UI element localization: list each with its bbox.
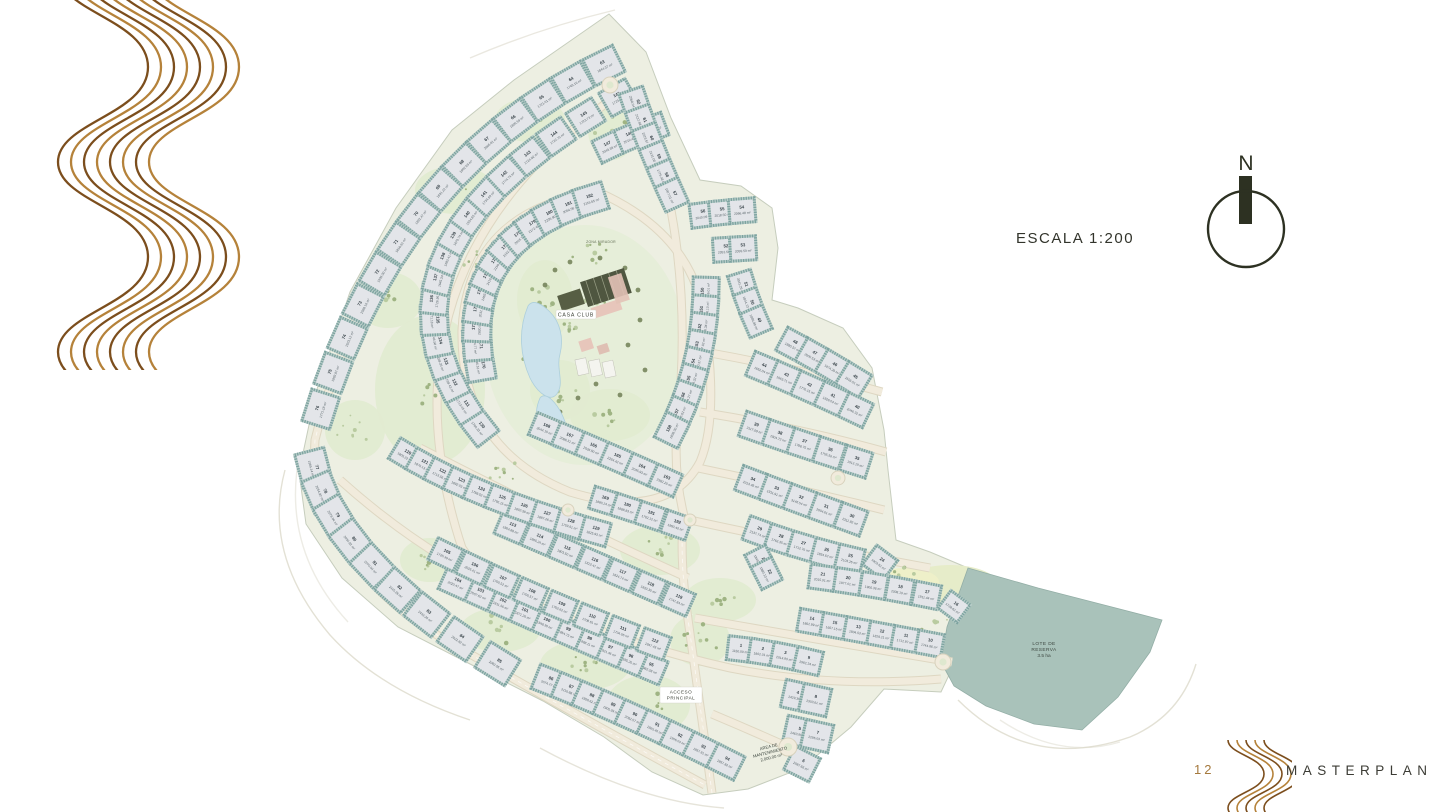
tree-dot: [570, 665, 573, 668]
lot-parcel[interactable]: 92962.24 m²: [793, 646, 824, 675]
tree-dot: [686, 632, 689, 635]
tree-dot: [553, 268, 558, 273]
lot-parcel[interactable]: 191906.36 m²: [859, 572, 889, 600]
lot-parcel[interactable]: 101744.86 m²: [915, 630, 945, 657]
tree-dot: [392, 297, 396, 301]
tree-dot: [583, 661, 587, 665]
tree-dot: [595, 262, 598, 265]
tree-dot: [336, 434, 338, 436]
tree-dot: [699, 639, 703, 643]
roundabout-island: [565, 507, 570, 512]
tree-dot: [643, 368, 648, 373]
tree-dot: [893, 570, 896, 573]
tree-dot: [504, 641, 509, 646]
masterplan-map[interactable]: LOTE DE RESERVA 3.5 ha: [0, 0, 1450, 812]
lot-number: 135: [435, 316, 440, 324]
lot-parcel[interactable]: 1291825.93 m²: [579, 516, 611, 546]
tree-dot: [558, 395, 562, 399]
tree-dot: [425, 385, 429, 389]
tree-dot: [594, 382, 599, 387]
tree-dot: [659, 548, 662, 551]
tree-dot: [601, 413, 605, 417]
tree-dot: [420, 402, 424, 406]
tree-dot: [719, 594, 721, 596]
tree-dot: [352, 435, 355, 438]
tree-dot: [465, 188, 467, 190]
tree-dot: [568, 325, 572, 329]
lot-parcel[interactable]: 182008.10 m²: [885, 576, 915, 604]
tree-dot: [584, 664, 587, 667]
tree-dot: [423, 556, 426, 559]
tree-dot: [543, 283, 548, 288]
footer-weave-logo: [1222, 738, 1292, 812]
tree-dot: [503, 471, 506, 474]
tree-dot: [424, 568, 426, 570]
tree-dot: [605, 249, 608, 252]
tree-dot: [423, 394, 425, 396]
tree-dot: [593, 131, 597, 135]
tree-dot: [557, 399, 561, 403]
roundabout-island: [939, 658, 946, 665]
tree-dot: [359, 421, 361, 423]
tree-dot: [550, 305, 552, 307]
main-access: ACCESO PRINCIPAL: [660, 687, 702, 703]
tree-dot: [705, 638, 709, 642]
tree-dot: [575, 656, 577, 658]
tree-dot: [698, 632, 700, 634]
tree-dot: [661, 708, 664, 711]
tree-dot: [476, 250, 479, 253]
tree-dot: [902, 566, 906, 570]
tree-dot: [626, 343, 631, 348]
tree-dot: [667, 542, 670, 545]
lot-parcel[interactable]: 532099.59 m²: [729, 236, 756, 261]
tree-dot: [660, 553, 664, 557]
tree-dot: [350, 415, 352, 417]
tree-dot: [574, 389, 577, 392]
tree-dot: [613, 419, 615, 421]
roundabout-island: [835, 475, 841, 481]
tree-dot: [500, 625, 503, 628]
tree-dot: [598, 256, 603, 261]
tree-dot: [610, 420, 614, 424]
lot-number: 136: [428, 294, 434, 302]
tree-dot: [495, 628, 499, 632]
tree-dot: [592, 251, 597, 256]
tree-dot: [682, 633, 686, 637]
tree-dot: [685, 644, 688, 647]
compass-needle: [1239, 176, 1252, 224]
tree-dot: [607, 424, 610, 427]
lot-row: 562040.09 m²552018.50 m²542066.48 m²: [689, 198, 756, 229]
tree-dot: [608, 409, 611, 412]
tree-dot: [489, 476, 492, 479]
tree-dot: [586, 244, 590, 248]
tree-dot: [648, 540, 651, 543]
tree-dot: [638, 318, 643, 323]
reserve-label-line3: 3.5 ha: [1037, 653, 1051, 659]
tree-dot: [537, 290, 541, 294]
tree-dot: [618, 393, 623, 398]
acceso-label-line2: PRINCIPAL: [667, 696, 695, 701]
tree-dot: [387, 294, 391, 298]
tree-dot: [657, 702, 659, 704]
tree-dot: [656, 552, 659, 555]
tree-dot: [589, 244, 591, 246]
lot-parcel[interactable]: 82303.61 m²: [798, 683, 831, 716]
lot-row: 522091.58 m²532099.59 m²: [712, 236, 756, 262]
reserve-label-line1: LOTE DE: [1032, 641, 1055, 647]
tree-dot: [593, 660, 596, 663]
tree-dot: [353, 428, 357, 432]
tree-dot: [433, 394, 437, 398]
tree-dot: [426, 564, 428, 566]
lot-parcel[interactable]: 542066.48 m²: [728, 198, 756, 224]
tree-dot: [946, 619, 948, 621]
tree-dot: [513, 461, 517, 465]
casa-club-label: CASA CLUB: [558, 313, 594, 319]
tree-dot: [608, 411, 612, 415]
tree-dot: [665, 536, 668, 539]
lot-parcel[interactable]: 171911.44 m²: [911, 581, 941, 610]
tree-dot: [494, 467, 497, 470]
tree-dot: [365, 438, 368, 441]
page-number: 12: [1194, 762, 1214, 777]
tree-dot: [563, 322, 566, 325]
tree-dot: [623, 120, 627, 124]
tree-dot: [420, 554, 423, 557]
roundabout-island: [687, 517, 692, 522]
reserve-label-line2: RESERVA: [1031, 647, 1057, 653]
roundabout-island: [606, 81, 613, 88]
tree-dot: [499, 476, 501, 478]
tree-dot: [701, 622, 705, 626]
tree-dot: [462, 263, 465, 266]
tree-dot: [715, 598, 719, 602]
tree-dot: [468, 260, 471, 263]
tree-dot: [655, 692, 660, 697]
tree-dot: [710, 602, 714, 606]
tree-dot: [590, 258, 594, 262]
tree-dot: [932, 619, 936, 623]
tree-dot: [580, 669, 582, 671]
tree-dot: [476, 254, 478, 256]
compass-north-letter: N: [1238, 152, 1253, 175]
tree-dot: [576, 396, 581, 401]
tree-dot: [342, 425, 344, 427]
tree-dot: [571, 256, 574, 259]
scale-label: ESCALA 1:200: [1016, 230, 1134, 247]
acceso-label-line1: ACCESO: [670, 690, 692, 695]
footer-title: MASTERPLAN: [1286, 763, 1433, 778]
tree-dot: [719, 602, 723, 606]
tree-dot: [592, 412, 597, 417]
tree-dot: [568, 260, 573, 265]
tree-dot: [562, 399, 564, 401]
north-compass-icon: N: [1200, 148, 1296, 274]
tree-dot: [584, 668, 588, 672]
tree-dot: [512, 478, 514, 480]
tree-dot: [733, 596, 736, 599]
tree-dot: [636, 288, 641, 293]
mirador-label: ZONA MIRADOR: [586, 240, 616, 244]
tree-dot: [912, 572, 916, 576]
tree-dot: [568, 322, 571, 325]
masterplan-page: LOTE DE RESERVA 3.5 ha: [0, 0, 1450, 812]
tree-dot: [722, 597, 726, 601]
tree-dot: [530, 287, 534, 291]
tree-dot: [502, 468, 506, 472]
tree-dot: [489, 620, 493, 624]
tree-dot: [573, 328, 575, 330]
tree-dot: [655, 704, 659, 708]
tree-dot: [715, 646, 718, 649]
lot-number: 150: [700, 287, 705, 295]
lot-parcel[interactable]: 72296.03 m²: [800, 719, 833, 752]
